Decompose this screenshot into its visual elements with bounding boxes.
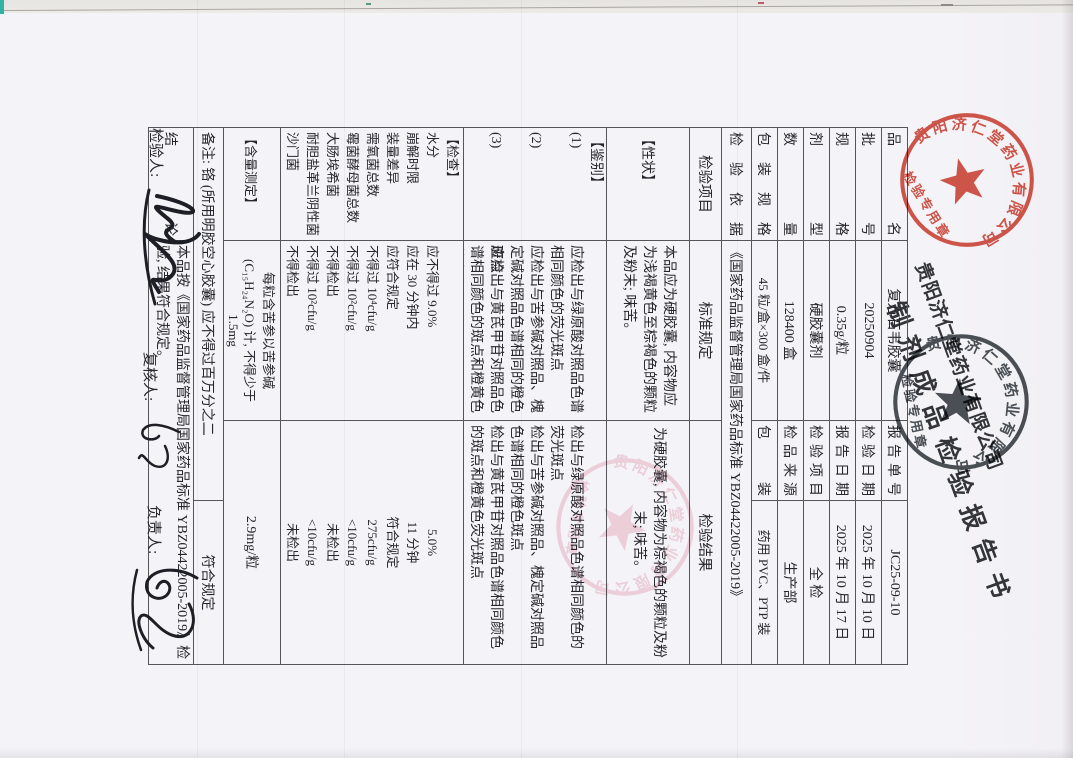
test-result-3: 符合规定	[382, 425, 402, 660]
scanned-report-image: 贵阳济仁堂药业有限公司 检验专用章 贵阳济仁堂药业有限公司 制剂成品检验报告书 …	[0, 0, 1073, 758]
test-name-3: 装量差异	[382, 132, 402, 236]
appearance-standard: 本品应为硬胶囊, 内容物应为浅褐黄色至棕褐色的颗粒及粉末; 味苦。	[607, 241, 690, 421]
test-result-7: <10cfu/g	[302, 425, 322, 660]
ident-num-2: (2)	[505, 132, 545, 236]
scan-edge-shadow	[1061, 0, 1073, 758]
scanner-color-tick	[0, 0, 4, 14]
test-standard-7: 不得过 10²cfu/g	[302, 245, 322, 416]
test-result-6: 未检出	[322, 425, 342, 660]
label-package: 包装	[752, 421, 778, 501]
table-row-form: 剂型 硬胶囊剂 检验项目 全 检	[804, 128, 830, 665]
label-quantity: 数量	[778, 128, 804, 241]
header-standard: 标准规定	[690, 241, 722, 421]
ident-standard-3: 应检出与黄芪甲苷对照品色谱相同颜色的斑点和橙黄色荧光斑点	[465, 245, 505, 416]
table-row-assay: 【含量测定】 每粒含苦参以苦参碱 (C₁₅H₂₄N₂O) 计, 不得少于 1.5…	[224, 128, 281, 665]
ident-result-2: 检出与苦参碱对照品、槐定碱对照品色谱相同的橙色斑点	[505, 425, 545, 660]
section-appearance-label: 【性状】	[607, 128, 690, 241]
ident-num-1: (1)	[545, 132, 585, 236]
header-test-item: 检验项目	[690, 128, 722, 241]
test-result-5: <10cfu/g	[342, 425, 362, 660]
label-test-scope: 检验项目	[804, 421, 830, 501]
test-result-2: 11 分钟	[402, 425, 422, 660]
test-name-1: 水分	[422, 132, 442, 236]
assay-result: 2.9mg/粒	[224, 421, 281, 665]
value-batch-no: 20250904	[856, 241, 882, 421]
tests-results: 5.0% 11 分钟 符合规定 275cfu/g <10cfu/g 未检出 <1…	[281, 421, 464, 665]
reviewer-signature	[134, 412, 189, 487]
table-row-headers: 检验项目 标准规定 检验结果	[690, 128, 722, 665]
approver-signature	[126, 552, 211, 657]
label-pack-spec: 包装规格	[752, 128, 778, 241]
inspection-table: 品名 复方石韦胶囊 报告单号 JC25-09-10 批号 20250904 检验…	[148, 127, 908, 665]
ident-standard-2: 应检出与苦参碱对照品、槐定碱对照品色谱相同的橙色斑点	[505, 245, 545, 416]
scan-streak	[521, 0, 522, 758]
label-batch-no: 批号	[856, 128, 882, 241]
scan-streak	[197, 0, 198, 758]
section-identification-label: 【鉴别】 (1) (2) (3)	[464, 128, 607, 241]
test-standard-8: 不得检出	[282, 245, 302, 416]
test-name-5: 霉菌酵母菌总数	[342, 132, 362, 236]
report-page: 贵阳济仁堂药业有限公司 制剂成品检验报告书 品名 复方石韦胶囊 报告单号 JC2…	[0, 0, 1073, 758]
scan-edge-shadow	[0, 748, 1073, 758]
inspector-label: 检验人:	[146, 128, 167, 177]
ident-standard-1: 应检出与绿原酸对照品色谱相同颜色的荧光斑点	[545, 245, 585, 416]
test-standard-4: 不得过 10⁴cfu/g	[362, 245, 382, 416]
approver-label: 负责人:	[144, 505, 165, 554]
reviewer-label: 复核人:	[140, 352, 161, 401]
test-name-8: 沙门菌	[282, 132, 302, 236]
table-row-spec: 规格 0.35g/粒 报告日期 2025 年 10 月 17 日	[830, 128, 856, 665]
test-standard-5: 不得过 10²cfu/g	[342, 245, 362, 416]
test-standard-2: 应在 30 分钟内	[402, 245, 422, 416]
assay-standard: 每粒含苦参以苦参碱 (C₁₅H₂₄N₂O) 计, 不得少于 1.5mg	[224, 241, 281, 421]
test-name-2: 崩解时限	[402, 132, 422, 236]
test-standard-1: 应不得过 9.0%	[422, 245, 442, 416]
test-name-6: 大肠埃希菌	[322, 132, 342, 236]
scan-streak	[737, 0, 738, 758]
value-test-scope: 全 检	[804, 501, 830, 665]
table-row-tests: 【检查】 水分 崩解时限 装量差异 需氧菌总数 霉菌酵母菌总数 大肠埃希菌 耐胆…	[281, 128, 464, 665]
label-specification: 规格	[830, 128, 856, 241]
identification-standards: 应检出与绿原酸对照品色谱相同颜色的荧光斑点 应检出与苦参碱对照品、槐定碱对照品色…	[464, 241, 607, 421]
ident-num-3: (3)	[465, 132, 505, 236]
dark-company-seal	[874, 315, 1047, 488]
test-result-8: 未检出	[282, 425, 302, 660]
value-report-date: 2025 年 10 月 17 日	[830, 501, 856, 665]
test-name-7: 耐胆盐革兰阴性菌	[302, 132, 322, 236]
test-result-4: 275cfu/g	[362, 425, 382, 660]
section-tests-labels: 【检查】 水分 崩解时限 装量差异 需氧菌总数 霉菌酵母菌总数 大肠埃希菌 耐胆…	[281, 128, 464, 241]
value-pack-spec: 45 粒/盒×300 盒/件	[752, 241, 778, 421]
value-report-no: JC25-09-10	[882, 501, 908, 665]
tests-standards: 应不得过 9.0% 应在 30 分钟内 应符合规定 不得过 10⁴cfu/g 不…	[281, 241, 464, 421]
inspector-signature	[135, 182, 215, 312]
section-assay-label: 【含量测定】	[224, 128, 281, 241]
ident-result-3: 检出与黄芪甲苷对照品色谱相同颜色的斑点和橙黄色荧光斑点	[465, 425, 505, 660]
scanner-speck	[366, 3, 371, 5]
value-sample-source: 生产部	[778, 501, 804, 665]
value-specification: 0.35g/粒	[830, 241, 856, 421]
scan-streak	[344, 0, 345, 758]
label-report-date: 报告日期	[830, 421, 856, 501]
test-standard-6: 不得检出	[322, 245, 342, 416]
test-name-4: 需氧菌总数	[362, 132, 382, 236]
table-row-quantity: 数量 128400 盒 检品来源 生产部	[778, 128, 804, 665]
table-row-batch: 批号 20250904 检验日期 2025 年 10 月 10 日	[856, 128, 882, 665]
value-dosage-form: 硬胶囊剂	[804, 241, 830, 421]
scanner-speck	[941, 4, 953, 6]
label-test-date: 检验日期	[856, 421, 882, 501]
faint-pink-seal	[539, 441, 710, 612]
label-dosage-form: 剂型	[804, 128, 830, 241]
value-package: 药用 PVC、PTP 装	[752, 501, 778, 665]
table-row-packing: 包装规格 45 粒/盒×300 盒/件 包装 药用 PVC、PTP 装	[752, 128, 778, 665]
value-test-date: 2025 年 10 月 10 日	[856, 501, 882, 665]
scanner-speck	[758, 2, 764, 4]
value-quantity: 128400 盒	[778, 241, 804, 421]
page-edge-line	[0, 4, 1073, 11]
scan-edge-strip	[0, 0, 1073, 13]
test-result-1: 5.0%	[422, 425, 442, 660]
test-standard-3: 应符合规定	[382, 245, 402, 416]
label-sample-source: 检品来源	[778, 421, 804, 501]
